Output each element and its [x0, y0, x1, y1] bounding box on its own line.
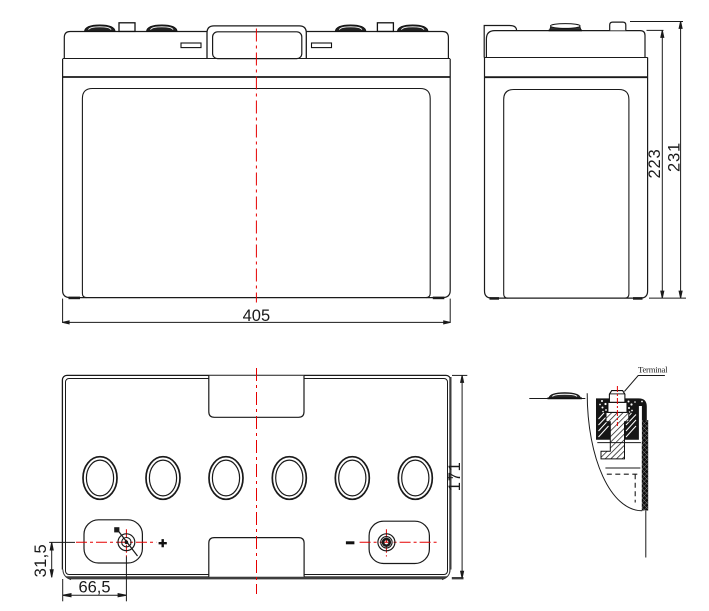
svg-text:231: 231 — [666, 142, 684, 172]
svg-text:31,5: 31,5 — [32, 544, 50, 577]
svg-text:223: 223 — [646, 149, 664, 179]
svg-text:66,5: 66,5 — [78, 579, 110, 597]
svg-text:405: 405 — [243, 307, 271, 325]
svg-text:Terminal: Terminal — [638, 364, 668, 374]
svg-text:171: 171 — [446, 461, 464, 491]
